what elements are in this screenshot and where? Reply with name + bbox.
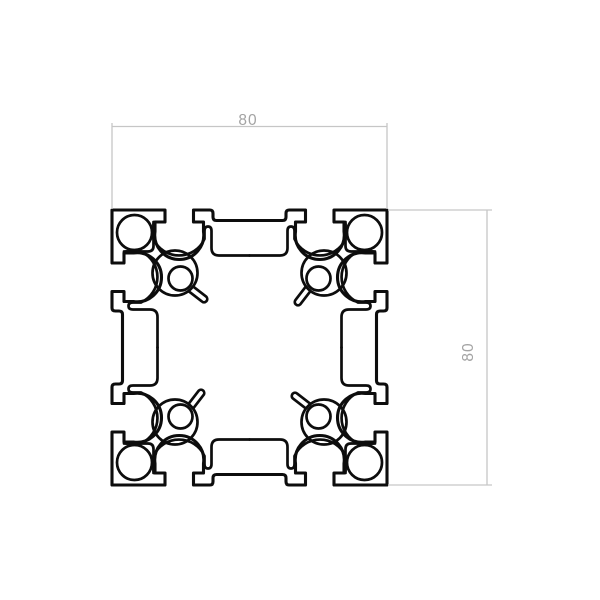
corner-block-inner-face	[124, 222, 154, 252]
dimension-label-top: 80	[238, 112, 257, 129]
dimension-label-right: 80	[460, 342, 477, 361]
diagonal-bore-circle	[169, 405, 193, 429]
corner-bore-circle	[347, 215, 382, 250]
corner-block-inner-face	[346, 222, 376, 252]
profile-outer-boundary	[112, 210, 387, 485]
diagonal-bore-circle	[307, 405, 331, 429]
corner-block-inner-face	[346, 444, 376, 474]
drawing-canvas: 8080	[0, 0, 600, 600]
corner-bore-circle	[117, 445, 152, 480]
diagonal-bore-circle	[169, 267, 193, 291]
diagonal-bore-circle	[307, 267, 331, 291]
corner-bore-circle	[347, 445, 382, 480]
corner-bore-circle	[117, 215, 152, 250]
corner-block-inner-face	[124, 444, 154, 474]
profile-technical-drawing: 8080	[0, 0, 600, 600]
